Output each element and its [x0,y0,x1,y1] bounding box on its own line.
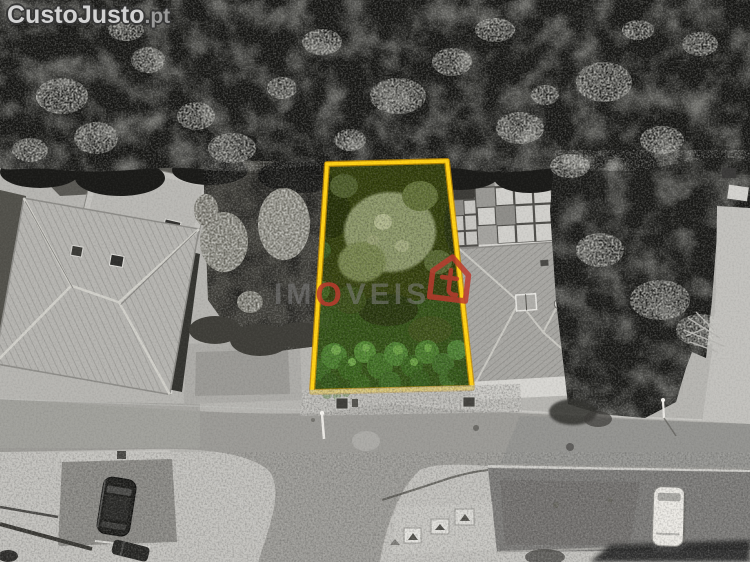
site-brand: CustoJusto [7,1,145,29]
agency-text-suffix: VEIS [346,278,430,311]
site-watermark-logo: CustoJusto.pt [7,1,170,30]
agency-text-prefix: IM [274,278,315,311]
aerial-listing-photo: CustoJusto.pt IMOVEIS [0,0,750,562]
agency-watermark: IMOVEIS [274,276,430,315]
house-icon [423,249,477,306]
site-tld: .pt [145,5,171,28]
agency-text-accent: O [315,276,345,314]
